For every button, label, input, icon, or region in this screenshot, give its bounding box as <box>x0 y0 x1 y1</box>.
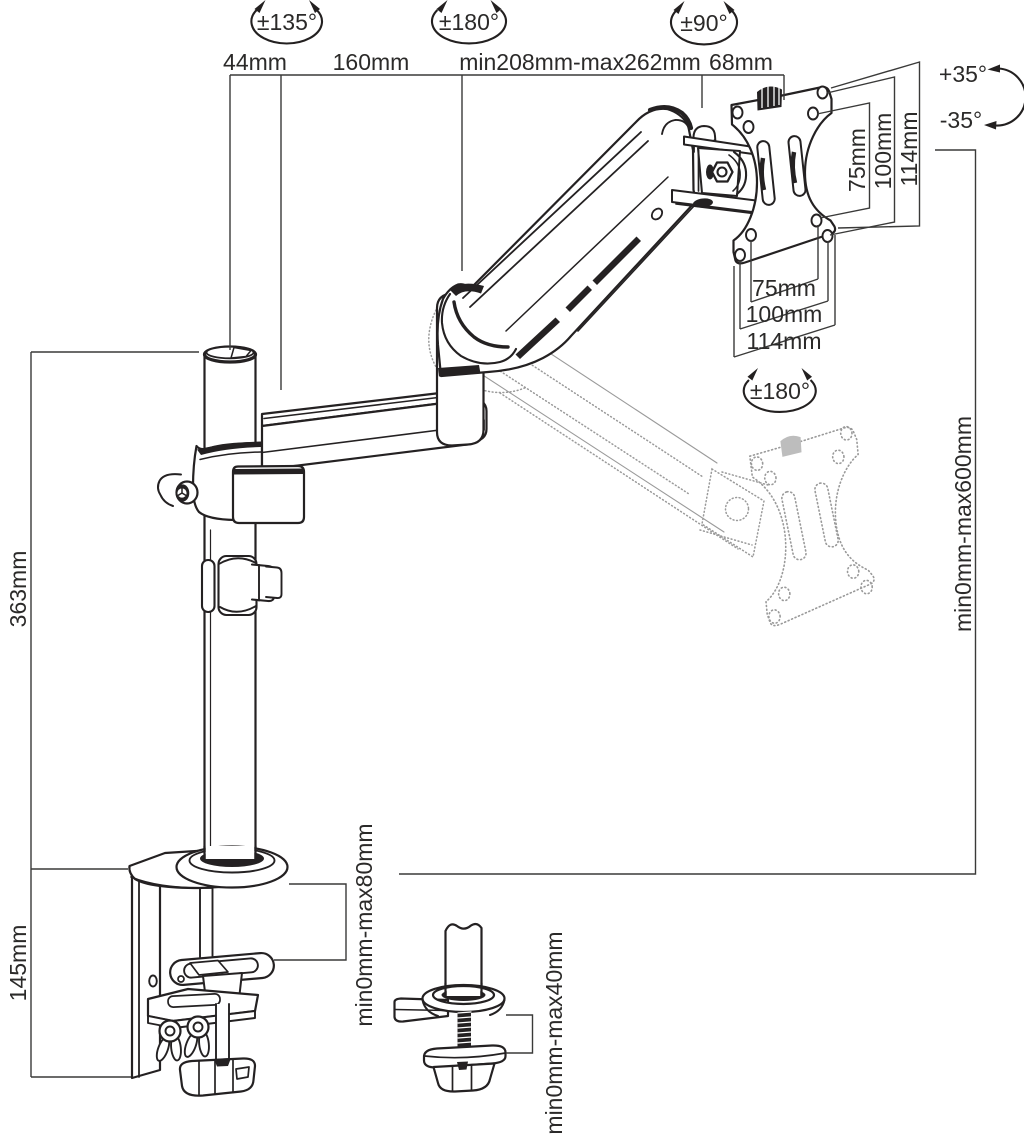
svg-text:44mm: 44mm <box>223 49 287 75</box>
svg-text:100mm: 100mm <box>870 113 896 190</box>
svg-text:75mm: 75mm <box>844 128 870 192</box>
svg-text:min0mm-max40mm: min0mm-max40mm <box>541 931 567 1134</box>
svg-text:114mm: 114mm <box>747 328 822 354</box>
svg-text:min0mm-max80mm: min0mm-max80mm <box>351 823 377 1026</box>
svg-text:68mm: 68mm <box>709 49 773 75</box>
svg-text:+35°: +35° <box>939 61 987 87</box>
svg-text:±180°: ±180° <box>750 378 810 404</box>
svg-text:min0mm-max600mm: min0mm-max600mm <box>950 416 976 632</box>
svg-text:±135°: ±135° <box>257 9 317 35</box>
svg-text:-35°: -35° <box>940 107 982 133</box>
svg-text:114mm: 114mm <box>896 112 922 187</box>
svg-text:75mm: 75mm <box>752 275 816 301</box>
svg-text:145mm: 145mm <box>5 925 31 1002</box>
svg-text:±90°: ±90° <box>680 10 727 36</box>
svg-text:±180°: ±180° <box>439 9 499 35</box>
svg-text:160mm: 160mm <box>333 49 410 75</box>
svg-text:min208mm-max262mm: min208mm-max262mm <box>459 49 701 75</box>
svg-text:100mm: 100mm <box>746 301 823 327</box>
svg-text:363mm: 363mm <box>5 551 31 628</box>
